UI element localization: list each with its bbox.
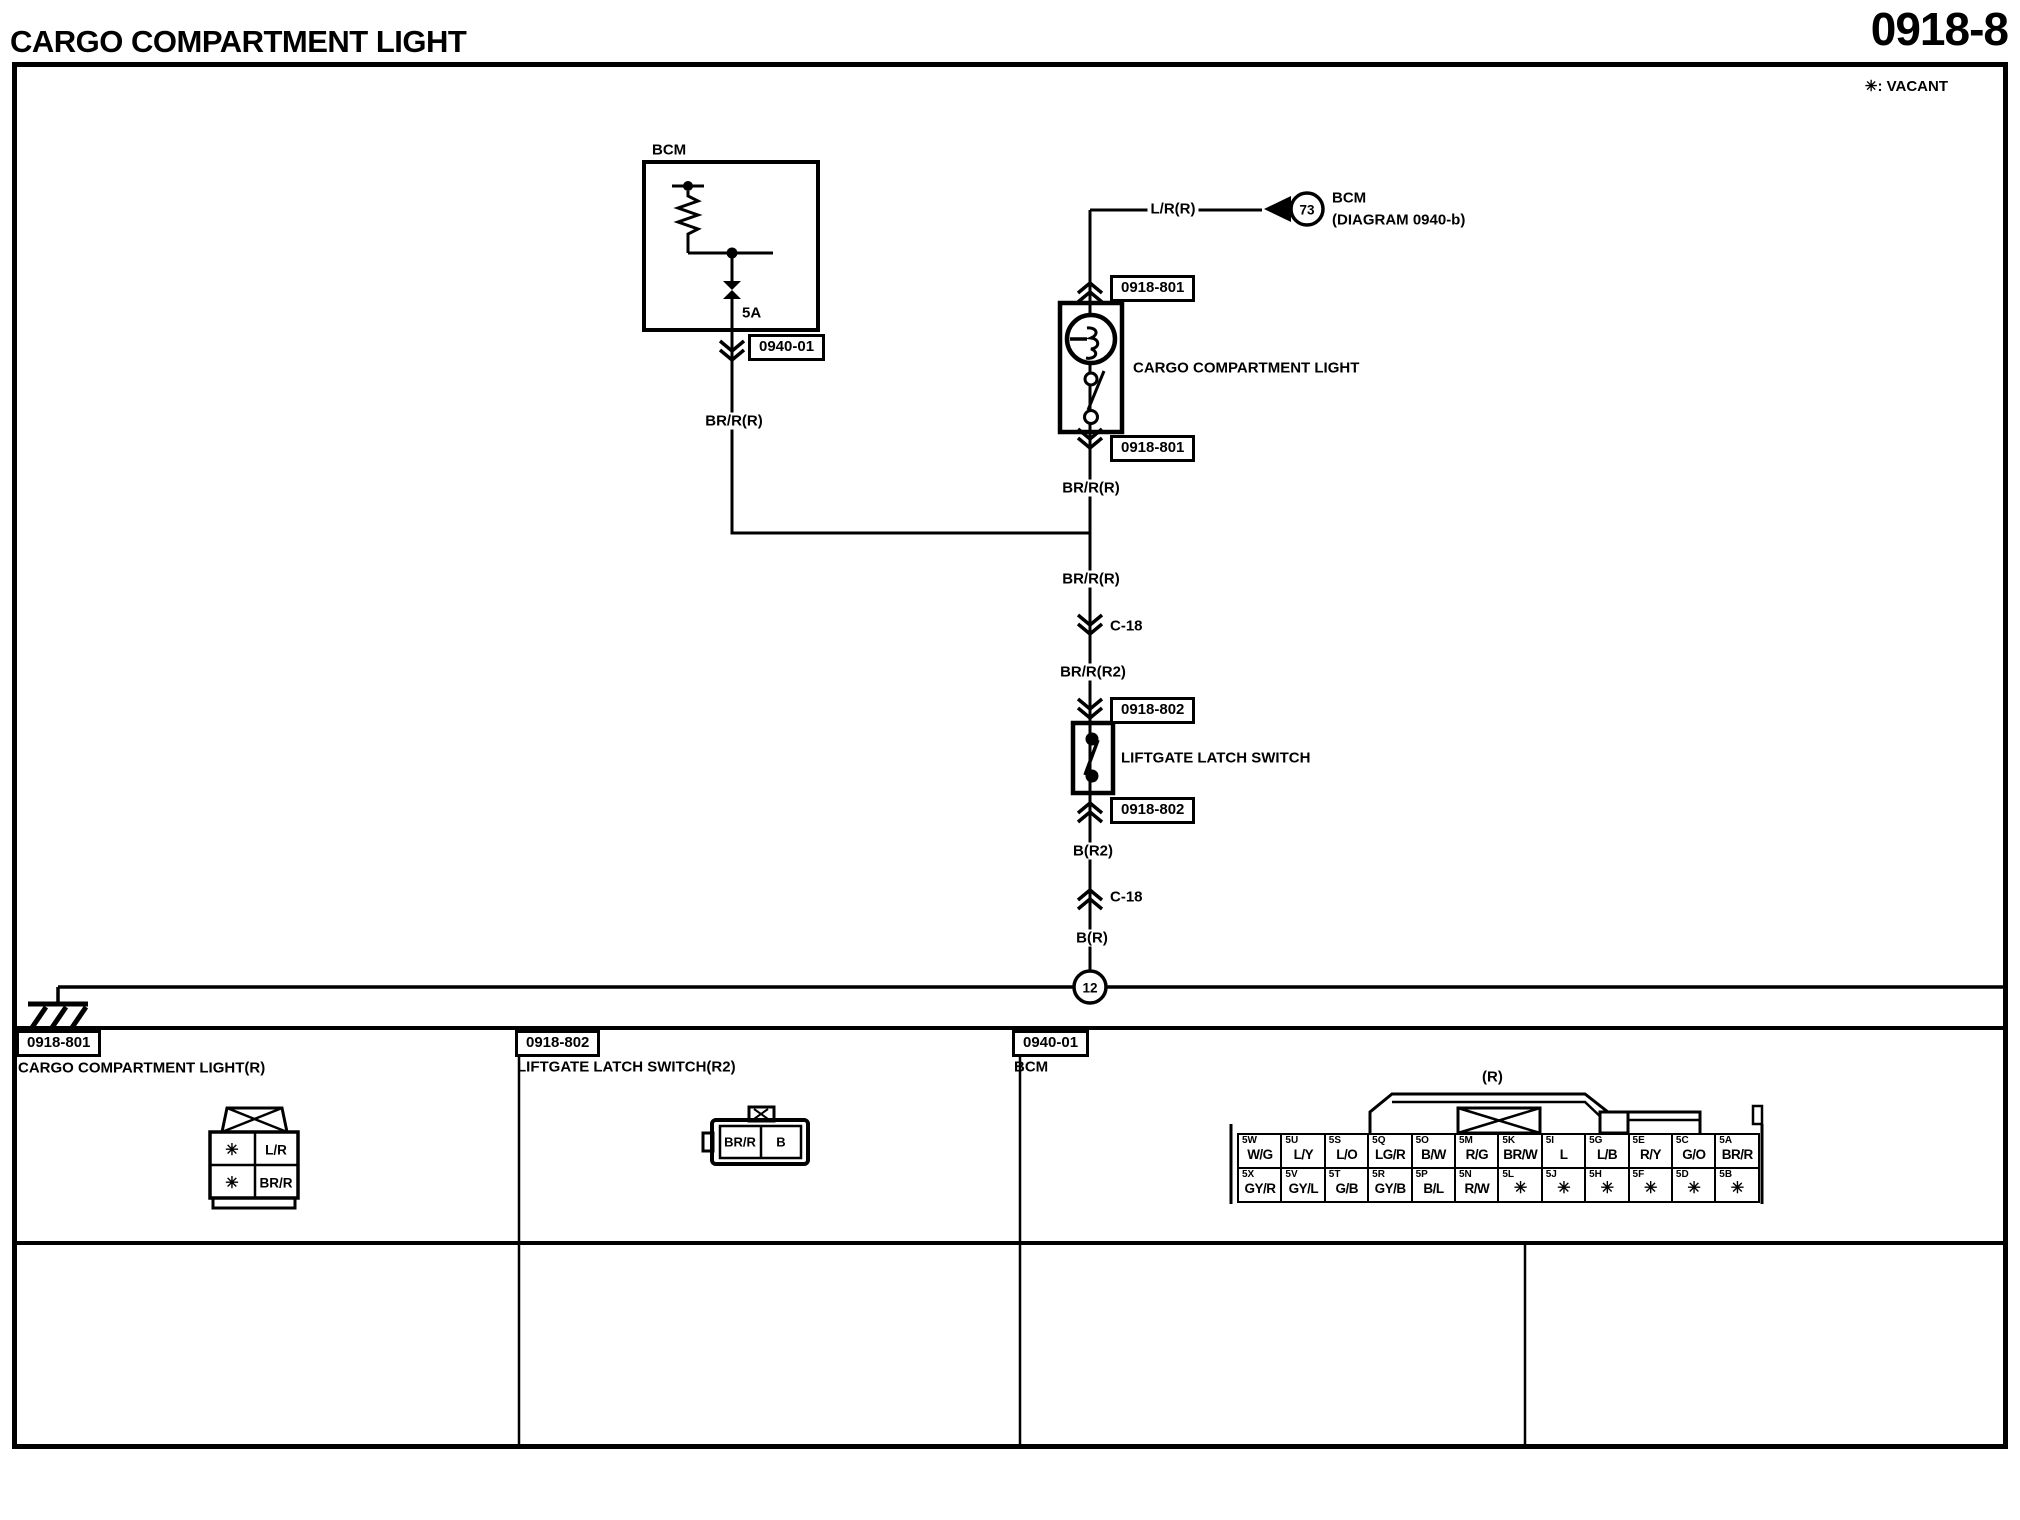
pin-id-label: 5U	[1285, 1135, 1298, 1146]
pin-wire-label: BR/R	[1716, 1147, 1758, 1162]
ref-box-0918-802-top: 0918-802	[1110, 697, 1195, 724]
pin-vacant-mark: ✳	[1543, 1178, 1585, 1198]
connector-base	[213, 1198, 295, 1208]
pin-wire-label: G/B	[1326, 1181, 1368, 1196]
wire-label: BR/R(R)	[1059, 480, 1123, 497]
bcm-pin-cell: 5TG/B	[1324, 1167, 1370, 1203]
bcm-pin-cell: 5XGY/R	[1237, 1167, 1283, 1203]
bcm-pin-cell: 5RGY/B	[1367, 1167, 1413, 1203]
cargo-light-label: CARGO COMPARTMENT LIGHT	[1133, 360, 1359, 377]
ground-icon	[31, 1007, 46, 1029]
pin-wire-label: R/Y	[1630, 1147, 1672, 1162]
pin-wire-label: L	[1543, 1147, 1585, 1162]
bcm-pin-cell: 5PB/L	[1411, 1167, 1457, 1203]
c801-connector-drawing	[210, 1108, 298, 1208]
pin-id-label: 5R	[1372, 1169, 1385, 1180]
pin-wire-label: GY/B	[1369, 1181, 1411, 1196]
wiring-diagram-page: CARGO COMPARTMENT LIGHT 0918-8 ✳: VACANT	[0, 0, 2020, 1520]
pin-wire-label: G/O	[1673, 1147, 1715, 1162]
pin-id-label: 5N	[1459, 1169, 1472, 1180]
pin-id-label: 5V	[1285, 1169, 1297, 1180]
pin-id-label: 5S	[1329, 1135, 1341, 1146]
pin-wire-label: R/W	[1456, 1181, 1498, 1196]
pin-id-label: 5L	[1502, 1169, 1514, 1180]
pin-id-label: 5B	[1719, 1169, 1732, 1180]
wire-label: BR/R(R)	[702, 413, 766, 430]
offpage-target-label: BCM	[1332, 190, 1366, 207]
inline-connector-label: C-18	[1110, 889, 1143, 906]
connector-chevrons	[720, 283, 1102, 909]
pin-wire-label: L/R	[265, 1143, 287, 1158]
pin-wire-label: GY/R	[1239, 1181, 1281, 1196]
bcm-pin-cell: 5J✳	[1541, 1167, 1587, 1203]
detail-section-grid	[12, 1028, 2008, 1449]
ref-box-0918-801-top: 0918-801	[1110, 275, 1195, 302]
pin-id-label: 5F	[1633, 1169, 1645, 1180]
inline-connector-label: C-18	[1110, 618, 1143, 635]
resistor-icon	[678, 191, 698, 253]
switch-contact	[1085, 411, 1098, 424]
bcm-pin-cell: 5UL/Y	[1280, 1133, 1326, 1169]
pin-id-label: 5X	[1242, 1169, 1254, 1180]
pin-wire-label: GY/L	[1282, 1181, 1324, 1196]
bcm-pin-cell: 5H✳	[1584, 1167, 1630, 1203]
pin-wire-label: W/G	[1239, 1147, 1281, 1162]
bcm-pin-cell: 5ABR/R	[1714, 1133, 1760, 1169]
pin-id-label: 5K	[1502, 1135, 1515, 1146]
bcm-pin-cell: 5MR/G	[1454, 1133, 1500, 1169]
bcm-pin-cell: 5NR/W	[1454, 1167, 1500, 1203]
bcm-pin-cell: 5B✳	[1714, 1167, 1760, 1203]
page-border	[15, 65, 2006, 1447]
pin-wire-label: BR/R	[260, 1176, 293, 1191]
ground-rail	[28, 971, 2008, 1029]
pin-wire-label: L/O	[1326, 1147, 1368, 1162]
junction-dot	[683, 181, 693, 191]
pin-id-label: 5Q	[1372, 1135, 1385, 1146]
ground-point-number: 12	[1082, 981, 1097, 996]
pin-id-label: 5I	[1546, 1135, 1554, 1146]
pin-vacant-mark: ✳	[225, 1173, 238, 1193]
bcm-pin-cell: 5GL/B	[1584, 1133, 1630, 1169]
pin-vacant-mark: ✳	[1499, 1178, 1541, 1198]
bcm-label: BCM	[650, 142, 688, 159]
schematic-canvas	[0, 0, 2020, 1520]
detail-name-0918-801: CARGO COMPARTMENT LIGHT(R)	[18, 1060, 265, 1077]
wire-label: BR/R(R2)	[1057, 664, 1129, 681]
pin-vacant-mark: ✳	[1586, 1178, 1628, 1198]
wire-label: BR/R(R)	[1059, 571, 1123, 588]
offpage-diagram-label: (DIAGRAM 0940-b)	[1332, 212, 1465, 229]
bcm-pin-row-1: 5WW/G5UL/Y5SL/O5QLG/R5OB/W5MR/G5KBR/W5IL…	[1237, 1133, 1760, 1169]
bcm-pin-cell: 5SL/O	[1324, 1133, 1370, 1169]
wire-label: B(R2)	[1070, 843, 1116, 860]
liftgate-switch-symbol	[1073, 723, 1113, 793]
pin-wire-label: B	[776, 1135, 785, 1150]
pin-wire-label: BR/W	[1499, 1147, 1541, 1162]
pin-vacant-mark: ✳	[1716, 1178, 1758, 1198]
connector-tab	[1753, 1106, 1762, 1124]
pin-vacant-mark: ✳	[1673, 1178, 1715, 1198]
bcm-pin-cell: 5CG/O	[1671, 1133, 1717, 1169]
detail-name-0940-01: BCM	[1014, 1059, 1048, 1076]
pin-id-label: 5D	[1676, 1169, 1689, 1180]
pin-id-label: 5W	[1242, 1135, 1257, 1146]
pin-wire-label: B/W	[1413, 1147, 1455, 1162]
pin-id-label: 5T	[1329, 1169, 1341, 1180]
pin-id-label: 5M	[1459, 1135, 1473, 1146]
wire-label: B(R)	[1073, 930, 1111, 947]
bcm-pin-cell: 5ER/Y	[1628, 1133, 1674, 1169]
detail-ref-0918-801: 0918-801	[16, 1030, 101, 1057]
connector-tab	[1600, 1112, 1628, 1133]
ref-box-0918-802-bottom: 0918-802	[1110, 797, 1195, 824]
pin-wire-label: B/L	[1413, 1181, 1455, 1196]
wires	[732, 210, 1262, 970]
bcm-pin-cell: 5WW/G	[1237, 1133, 1283, 1169]
fuse-icon	[723, 290, 741, 299]
pin-id-label: 5H	[1589, 1169, 1602, 1180]
bcm-pin-row-2: 5XGY/R5VGY/L5TG/B5RGY/B5PB/L5NR/W5L✳5J✳5…	[1237, 1167, 1760, 1203]
connector-key-x	[222, 1108, 282, 1132]
bcm-pin-cell: 5F✳	[1628, 1167, 1674, 1203]
pin-id-label: 5A	[1719, 1135, 1732, 1146]
fuse-icon	[723, 281, 741, 290]
wire-label: L/R(R)	[1148, 201, 1199, 218]
pin-wire-label: L/B	[1586, 1147, 1628, 1162]
bcm-pin-cell: 5QLG/R	[1367, 1133, 1413, 1169]
liftgate-switch-label: LIFTGATE LATCH SWITCH	[1121, 750, 1310, 767]
ground-icon	[51, 1007, 66, 1029]
bcm-pin-cell: 5L✳	[1497, 1167, 1543, 1203]
detail-ref-0940-01: 0940-01	[1012, 1030, 1089, 1057]
bcm-pin-cell: 5IL	[1541, 1133, 1587, 1169]
pin-vacant-mark: ✳	[225, 1140, 238, 1160]
bcm-pin-cell: 5OB/W	[1411, 1133, 1457, 1169]
pin-id-label: 5E	[1633, 1135, 1645, 1146]
pin-id-label: 5O	[1416, 1135, 1429, 1146]
offpage-circle-number: 73	[1299, 203, 1314, 218]
ref-box-0918-801-bottom: 0918-801	[1110, 435, 1195, 462]
connector-key-x	[227, 1108, 287, 1132]
bcm-pin-cell: 5D✳	[1671, 1167, 1717, 1203]
pin-id-label: 5P	[1416, 1169, 1428, 1180]
bcm-pin-cell: 5VGY/L	[1280, 1167, 1326, 1203]
switch-contact	[1085, 373, 1097, 385]
pin-vacant-mark: ✳	[1630, 1178, 1672, 1198]
ref-box-0940-01: 0940-01	[748, 334, 825, 361]
detail-ref-0918-802: 0918-802	[515, 1030, 600, 1057]
pin-wire-label: L/Y	[1282, 1147, 1324, 1162]
bcm-pin-cell: 5KBR/W	[1497, 1133, 1543, 1169]
connector-side-tab	[703, 1133, 713, 1151]
pin-id-label: 5C	[1676, 1135, 1689, 1146]
connector-variant-label: (R)	[1482, 1069, 1503, 1086]
pin-wire-label: LG/R	[1369, 1147, 1411, 1162]
pin-wire-label: R/G	[1456, 1147, 1498, 1162]
pin-id-label: 5J	[1546, 1169, 1557, 1180]
detail-name-0918-802: LIFTGATE LATCH SWITCH(R2)	[517, 1059, 736, 1076]
pin-wire-label: BR/R	[724, 1135, 756, 1150]
bcm-pin-table: 5WW/G5UL/Y5SL/O5QLG/R5OB/W5MR/G5KBR/W5IL…	[1237, 1133, 1760, 1203]
pin-id-label: 5G	[1589, 1135, 1602, 1146]
ground-icon	[71, 1007, 86, 1029]
fuse-rating-label: 5A	[742, 305, 761, 322]
offpage-arrow-icon	[1264, 196, 1291, 222]
